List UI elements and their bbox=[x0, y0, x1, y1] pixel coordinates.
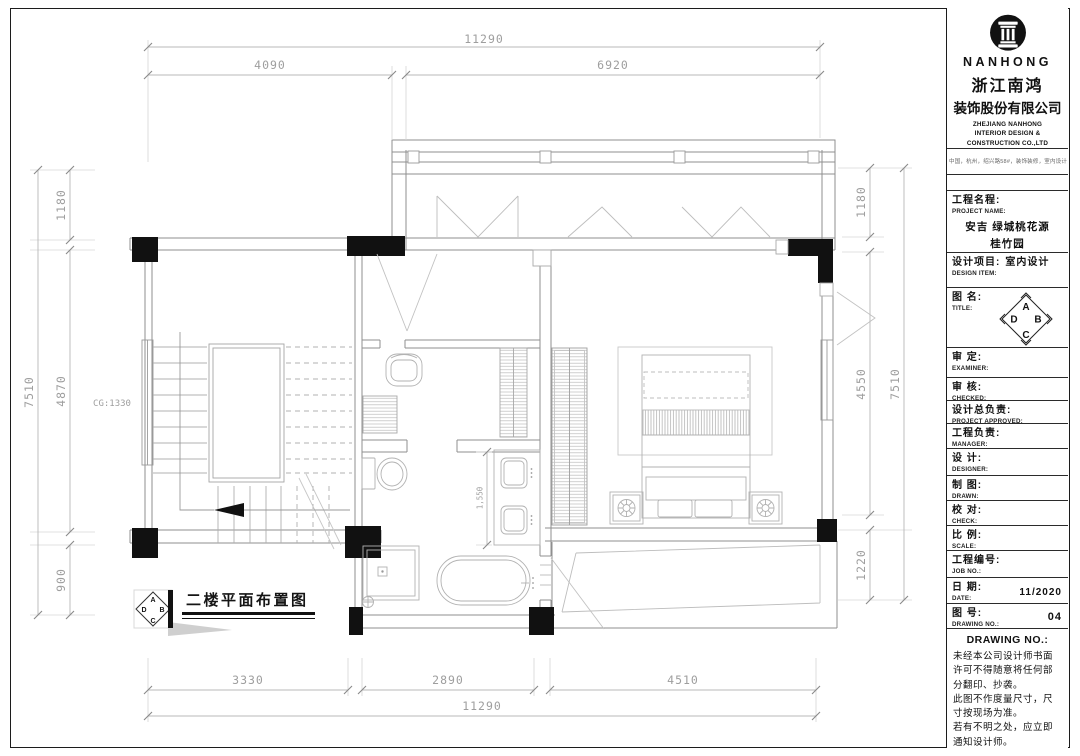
table-lamp bbox=[757, 500, 774, 517]
nightstand bbox=[749, 492, 782, 524]
field-project-approved: 设计总负责: PROJECT APPROVED: bbox=[947, 400, 1068, 423]
dim-right-b: 4550 bbox=[854, 368, 868, 400]
field-job-no: 工程编号: JOB NO.: bbox=[947, 550, 1068, 577]
bathroom-fixtures bbox=[362, 450, 540, 608]
bed bbox=[642, 355, 750, 518]
icon-shadow bbox=[168, 622, 232, 636]
dim-bottom-c: 4510 bbox=[667, 673, 699, 687]
structural-columns bbox=[132, 236, 837, 635]
notes-header: DRAWING NO.: bbox=[953, 634, 1062, 646]
notes-body: 未经本公司设计师书面 许可不得随意将任何部 分翻印、抄袭。 此图不作度量尺寸，尺… bbox=[953, 650, 1062, 748]
dim-right-c: 1220 bbox=[854, 549, 868, 581]
balcony-folding-panels bbox=[437, 196, 770, 237]
drawing-no-value: 04 bbox=[1048, 611, 1062, 623]
stair-direction-arrow bbox=[214, 503, 244, 517]
pl-underline-thin bbox=[182, 618, 315, 619]
company-name-en: ZHEJIANG NANHONG INTERIOR DESIGN & CONST… bbox=[967, 120, 1048, 148]
title-block: NANHONG 浙江南鸿 装饰股份有限公司 ZHEJIANG NANHONG I… bbox=[946, 8, 1068, 748]
field-drawn: 制 图: DRAWN: bbox=[947, 475, 1068, 500]
dim-top-overall: 11290 bbox=[464, 32, 504, 46]
notes-section: DRAWING NO.: 未经本公司设计师书面 许可不得随意将任何部 分翻印、抄… bbox=[947, 628, 1068, 748]
field-drawing-no: 图 号: DRAWING NO.: 04 bbox=[947, 603, 1068, 628]
icon-letter-d: D bbox=[141, 607, 146, 614]
compass-letter-d: D bbox=[1010, 315, 1017, 326]
compass-letter-c: C bbox=[1022, 330, 1029, 341]
field-checked: 审 核: CHECKED: bbox=[947, 377, 1068, 400]
field-examiner: 审 定: EXAMINER: bbox=[947, 347, 1068, 377]
middle-room-furniture bbox=[363, 348, 527, 437]
bathtub bbox=[437, 556, 530, 605]
company-name-cn-2: 装饰股份有限公司 bbox=[954, 97, 1062, 117]
table-lamp bbox=[618, 500, 635, 517]
nightstand bbox=[610, 492, 643, 524]
pillows bbox=[643, 410, 749, 435]
field-project-name: 工程名程: PROJECT NAME: 安吉 绿城桃花源 桂竹园 bbox=[947, 190, 1068, 252]
dim-vanity-width: 1,550 bbox=[476, 487, 485, 510]
field-scale: 比 例: SCALE: bbox=[947, 525, 1068, 550]
staircase bbox=[153, 332, 352, 549]
compass-letter-b: B bbox=[1034, 315, 1041, 326]
date-value: 11/2020 bbox=[1019, 587, 1062, 598]
field-manager: 工程负责: MANAGER: bbox=[947, 423, 1068, 448]
plan-title: 二楼平面布置图 bbox=[186, 589, 309, 610]
dim-bottom-b: 2890 bbox=[432, 673, 464, 687]
dim-right-a: 1180 bbox=[854, 186, 868, 218]
icon-letter-a: A bbox=[150, 597, 155, 604]
field-title: 图 名: TITLE: A B C D bbox=[947, 287, 1068, 347]
field-design-item: 设计项目:室内设计 DESIGN ITEM: bbox=[947, 252, 1068, 287]
dim-top-a: 4090 bbox=[254, 58, 286, 72]
company-tagline: 中国，杭州，绍兴路58#，装饰装修，室内设计 bbox=[947, 148, 1068, 174]
toilet-tank bbox=[362, 458, 375, 489]
spacer-row bbox=[947, 174, 1068, 190]
drawing-sheet: 11290 4090 6920 7510 1180 4870 900 CG:13… bbox=[0, 0, 1080, 756]
icon-letter-b: B bbox=[159, 607, 164, 614]
dim-bottom-a: 3330 bbox=[232, 673, 264, 687]
title-compass-icon: A B C D bbox=[998, 291, 1054, 347]
design-item-value: 室内设计 bbox=[1005, 257, 1049, 268]
project-name-value: 安吉 绿城桃花源 桂竹园 bbox=[952, 219, 1063, 252]
bed-bench bbox=[646, 477, 746, 500]
company-logo-column-icon bbox=[981, 14, 1035, 53]
field-designer: 设 计: DESIGNER: bbox=[947, 448, 1068, 475]
walls bbox=[130, 140, 837, 630]
roof-slope-lines bbox=[562, 545, 820, 612]
field-check: 校 对: CHECK: bbox=[947, 500, 1068, 525]
dim-left-b: 4870 bbox=[54, 375, 68, 407]
dim-right-overall: 7510 bbox=[888, 368, 902, 400]
icon-letter-c: C bbox=[150, 618, 155, 625]
toilet-bowl bbox=[377, 458, 407, 490]
bedroom-furniture bbox=[552, 347, 820, 612]
rug bbox=[618, 347, 772, 455]
dim-left-a: 1180 bbox=[54, 189, 68, 221]
doors bbox=[377, 240, 875, 629]
dim-bottom-overall: 11290 bbox=[462, 699, 502, 713]
compass-letter-a: A bbox=[1022, 302, 1029, 313]
pl-underline-thick bbox=[182, 612, 315, 615]
dim-left-c: 900 bbox=[54, 568, 68, 592]
dim-cg-note: CG:1330 bbox=[93, 399, 131, 409]
company-name-cn-1: 浙江南鸿 bbox=[971, 72, 1043, 96]
brand-name: NANHONG bbox=[963, 55, 1052, 69]
closet bbox=[363, 396, 397, 433]
floor-plan-drawing bbox=[0, 0, 945, 756]
field-date: 日 期: DATE: 11/2020 bbox=[947, 577, 1068, 603]
company-header: NANHONG 浙江南鸿 装饰股份有限公司 ZHEJIANG NANHONG I… bbox=[947, 8, 1068, 148]
dim-top-b: 6920 bbox=[597, 58, 629, 72]
dim-left-overall: 7510 bbox=[22, 376, 36, 408]
